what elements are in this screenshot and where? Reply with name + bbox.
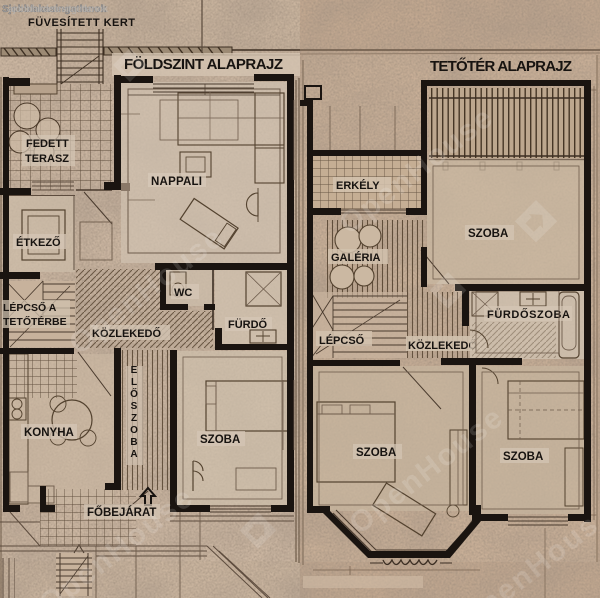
svg-text:LÉPCSŐ A: LÉPCSŐ A	[3, 301, 57, 314]
svg-text:FÖLDSZINT ALAPRAJZ: FÖLDSZINT ALAPRAJZ	[124, 56, 283, 73]
svg-text:SZOBA: SZOBA	[356, 447, 396, 459]
svg-text:GALÉRIA: GALÉRIA	[331, 251, 381, 264]
svg-text:LÉPCSŐ: LÉPCSŐ	[319, 334, 365, 347]
svg-text:FÜRDŐ: FÜRDŐ	[228, 318, 268, 331]
svg-text:ÉTKEZŐ: ÉTKEZŐ	[16, 236, 61, 249]
svg-text:SZOBA: SZOBA	[468, 228, 508, 240]
svg-text:FÜVESÍTETT KERT: FÜVESÍTETT KERT	[28, 16, 135, 29]
svg-text:O: O	[130, 425, 138, 436]
svg-text:KONYHA: KONYHA	[24, 427, 74, 439]
svg-text:Ő: Ő	[130, 387, 138, 400]
svg-text:TETŐTÉRBE: TETŐTÉRBE	[3, 315, 67, 328]
svg-text:WC: WC	[174, 287, 192, 299]
svg-text:FEDETT: FEDETT	[26, 138, 69, 150]
svg-text:NAPPALI: NAPPALI	[151, 176, 202, 188]
svg-text:SZOBA: SZOBA	[503, 451, 543, 463]
svg-text:Z: Z	[131, 413, 137, 424]
svg-text:FÜRDŐSZOBA: FÜRDŐSZOBA	[487, 308, 570, 321]
svg-text:TETŐTÉR ALAPRAJZ: TETŐTÉR ALAPRAJZ	[430, 57, 572, 75]
svg-text:E: E	[131, 365, 138, 376]
svg-text:ajobbhirdetesitgetlanok: ajobbhirdetesitgetlanok	[8, 4, 108, 15]
svg-text:B: B	[130, 437, 137, 448]
svg-text:S: S	[131, 401, 138, 412]
svg-text:TERASZ: TERASZ	[25, 153, 69, 165]
svg-text:KÖZLEKEDŐ: KÖZLEKEDŐ	[408, 339, 478, 352]
svg-text:SZOBA: SZOBA	[200, 434, 240, 446]
svg-text:L: L	[131, 377, 137, 388]
svg-text:A: A	[130, 449, 137, 460]
